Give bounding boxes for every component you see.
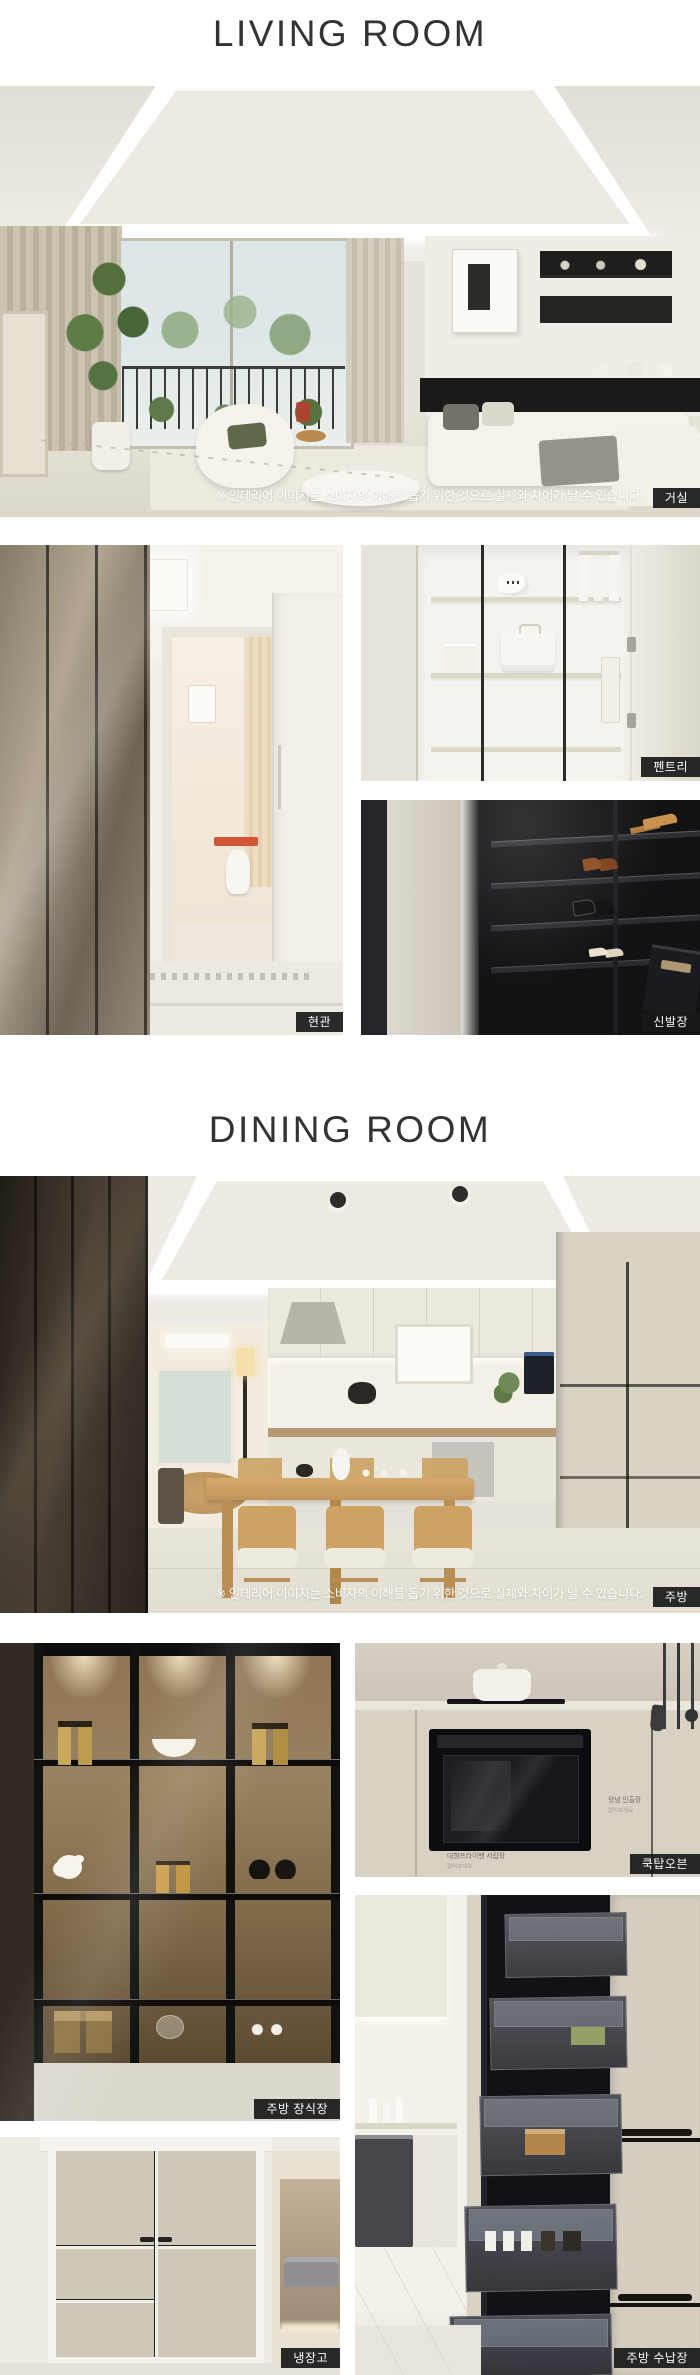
right-door-seam-1 <box>610 2138 700 2142</box>
photo-label-cooktop-oven: 쿡탑오븐 <box>630 1854 700 1874</box>
photo-label-pantry: 펜트리 <box>641 757 700 777</box>
fridge-panel-seam-v <box>626 1262 629 1562</box>
front-chair-1-cushion <box>236 1548 298 1568</box>
fridge-gap-vertical <box>154 2151 158 2357</box>
drawer-2-glass <box>494 2001 623 2027</box>
sofa-pillow-gray <box>443 404 479 430</box>
sofa-pillow-light <box>482 402 514 426</box>
photo-label-living-room: 거실 <box>653 488 700 508</box>
fridge-handle-notch-2 <box>158 2237 172 2242</box>
hallway-room <box>280 2179 340 2329</box>
table-vase <box>332 1448 350 1480</box>
right-door-seam-2 <box>610 2303 700 2307</box>
shoe-door-frame <box>387 800 461 1035</box>
annotation-pan-drawer-sub: 열어보세요 <box>447 1862 472 1870</box>
leaning-artwork <box>0 311 48 477</box>
front-chair-1 <box>238 1506 296 1554</box>
kitchen-display-photo: 주방 장식장 <box>0 1643 340 2121</box>
downlight-1 <box>330 1192 346 1208</box>
curtain-mid <box>346 238 404 443</box>
sofa-throw <box>538 435 619 486</box>
pantry-left-door <box>361 545 418 781</box>
fridge-handle-notch-1 <box>140 2237 154 2242</box>
counter-bottles <box>369 2099 403 2123</box>
wall-pad <box>524 1352 554 1394</box>
hinge-top <box>627 637 636 652</box>
section-title-dining-room: DINING ROOM <box>0 1111 700 1148</box>
drawer-2-item <box>571 2027 605 2045</box>
photo-label-kitchen-storage: 주방 수납장 <box>614 2348 700 2368</box>
section-title-living-room: LIVING ROOM <box>0 15 700 52</box>
counter-greens <box>494 1372 524 1408</box>
hall-art <box>188 685 216 723</box>
spray-bottles <box>579 551 619 601</box>
photo-label-refrigerator: 냉장고 <box>281 2348 340 2368</box>
photo-label-entrance: 현관 <box>296 1012 343 1032</box>
hall-curtain <box>244 637 274 887</box>
shoe-closet-photo: 신발장 <box>361 800 700 1035</box>
pantry-rail-2 <box>563 545 566 781</box>
wall-art-abstract <box>468 264 490 310</box>
storage-bin <box>445 644 475 671</box>
page: LIVING ROOM ※ <box>0 0 700 2375</box>
unit-glow <box>479 800 700 1035</box>
pantry-photo: 펜트리 <box>361 545 700 781</box>
partition-reflection <box>0 1176 148 1613</box>
pantry-rail-1 <box>481 545 484 781</box>
exit-sign-sticker <box>296 402 310 422</box>
oven-control-strip <box>437 1735 583 1748</box>
display-front-reflection <box>0 1643 340 2121</box>
refrigerator-photo: 냉장고 <box>0 2137 340 2375</box>
kitchen-photo: ※ 인테리어 이미지는 소비자의 이해를 돕기 위한 것으로 실제와 차이가 날… <box>0 1176 700 1613</box>
kitchenette-upper-cab <box>355 1895 447 2019</box>
hall-floor <box>172 925 274 962</box>
cooktop-oven-photo: 양념 인출장 열어보세요 대형프라이팬 서랍장 열어보세요 쿡탑오븐 <box>355 1643 700 1877</box>
oven-reflection <box>451 1761 511 1831</box>
kitchen-cove-inner <box>162 1176 598 1280</box>
kitchenette-counter <box>355 2123 457 2129</box>
fridge-top-frame <box>40 2137 272 2152</box>
kitchen-storage-photo: 주방 수납장 <box>355 1895 700 2375</box>
shoe-backlight <box>461 800 481 1035</box>
cabinet-seam-left <box>415 1710 417 1877</box>
hinge-bottom <box>627 713 636 728</box>
floor-tile-diagonal <box>355 2247 467 2375</box>
counter-shelf <box>268 1428 590 1437</box>
helmet <box>497 573 529 596</box>
interior-disclaimer: ※ 인테리어 이미지는 소비자의 이해를 돕기 위한 것으로 실제와 차이가 날… <box>216 485 643 504</box>
pot-lid-knob <box>497 1663 507 1670</box>
side-table <box>296 430 326 442</box>
drawer-4-jars <box>485 2231 581 2251</box>
threshold-dots <box>150 973 310 980</box>
wall-shelf-lower <box>540 296 672 323</box>
drawer-1-glass <box>509 1917 623 1941</box>
armchair-pillow <box>227 422 267 450</box>
side-room-ceiling-light <box>165 1334 229 1348</box>
cabinet-seam-right <box>651 1710 653 1877</box>
hanging-organizer <box>601 657 620 723</box>
drawer-3-box <box>525 2129 565 2155</box>
kettle <box>348 1382 376 1404</box>
pantry-shelf-2 <box>431 673 621 678</box>
pantry-right-door <box>632 545 700 781</box>
helmet-vents <box>507 581 519 584</box>
fridge-panel-seam-h2 <box>560 1476 700 1479</box>
annotation-pan-drawer-title: 대형프라이팬 서랍장 <box>447 1851 505 1861</box>
kitchenette-lower-cab <box>413 2135 457 2247</box>
table-teapot <box>296 1464 313 1477</box>
ladle-head <box>685 1709 698 1722</box>
pocket-door <box>272 593 343 1025</box>
fridge-gap-h-left2 <box>56 2299 154 2303</box>
hallway-floor-glow <box>280 2323 340 2333</box>
toolbox-handle <box>519 624 541 634</box>
kitchen-window <box>395 1324 473 1384</box>
shelf-decor-upper <box>552 258 660 270</box>
side-room-window <box>156 1368 234 1466</box>
fridge-panel-seam-h1 <box>560 1384 700 1387</box>
dishwasher-panel <box>355 2135 413 2247</box>
front-chair-3-cushion <box>412 1548 474 1568</box>
drawer-3-glass <box>484 2099 618 2127</box>
annotation-seasoning-drawer-sub: 열어보세요 <box>608 1806 633 1814</box>
console-vases <box>590 358 680 378</box>
fridge-gap-h-left <box>56 2245 154 2249</box>
toolbox <box>501 631 555 671</box>
pantry-shelf-3 <box>431 747 621 752</box>
vanity-stool <box>226 850 250 894</box>
indoor-plant <box>55 236 175 451</box>
interior-disclaimer: ※ 인테리어 이미지는 소비자의 이해를 돕기 위한 것으로 실제와 차이가 날… <box>216 1583 643 1602</box>
floor-lamp <box>243 1362 247 1460</box>
vanity-red <box>214 837 258 846</box>
photo-label-shoe-closet: 신발장 <box>641 1012 700 1032</box>
front-chair-2-cushion <box>324 1548 386 1568</box>
front-chair-3 <box>414 1506 472 1554</box>
right-door-handle-1 <box>618 2129 692 2136</box>
mirror-reflection <box>0 545 150 1035</box>
front-chair-2 <box>326 1506 384 1554</box>
lamp-shade <box>236 1348 255 1376</box>
right-door-handle-2 <box>618 2294 692 2301</box>
living-room-photo: ※ 인테리어 이미지는 소비자의 이해를 돕기 위한 것으로 실제와 차이가 날… <box>0 86 700 517</box>
side-chair <box>158 1468 184 1524</box>
downlight-2 <box>452 1186 468 1202</box>
entrance-photo: 현관 <box>0 545 343 1035</box>
fridge-gap-h-right <box>158 2245 256 2249</box>
shoe-left-edge <box>361 800 387 1035</box>
table-cups <box>360 1469 420 1477</box>
white-pot <box>473 1669 531 1701</box>
threshold-line <box>150 1003 343 1006</box>
hallway-bed <box>284 2257 338 2287</box>
photo-label-kitchen-display: 주방 장식장 <box>254 2099 340 2119</box>
annotation-seasoning-drawer-title: 양념 인출장 <box>608 1795 641 1805</box>
door-handle-line <box>278 745 281 809</box>
dining-table <box>206 1478 474 1500</box>
photo-label-kitchen: 주방 <box>653 1587 700 1607</box>
